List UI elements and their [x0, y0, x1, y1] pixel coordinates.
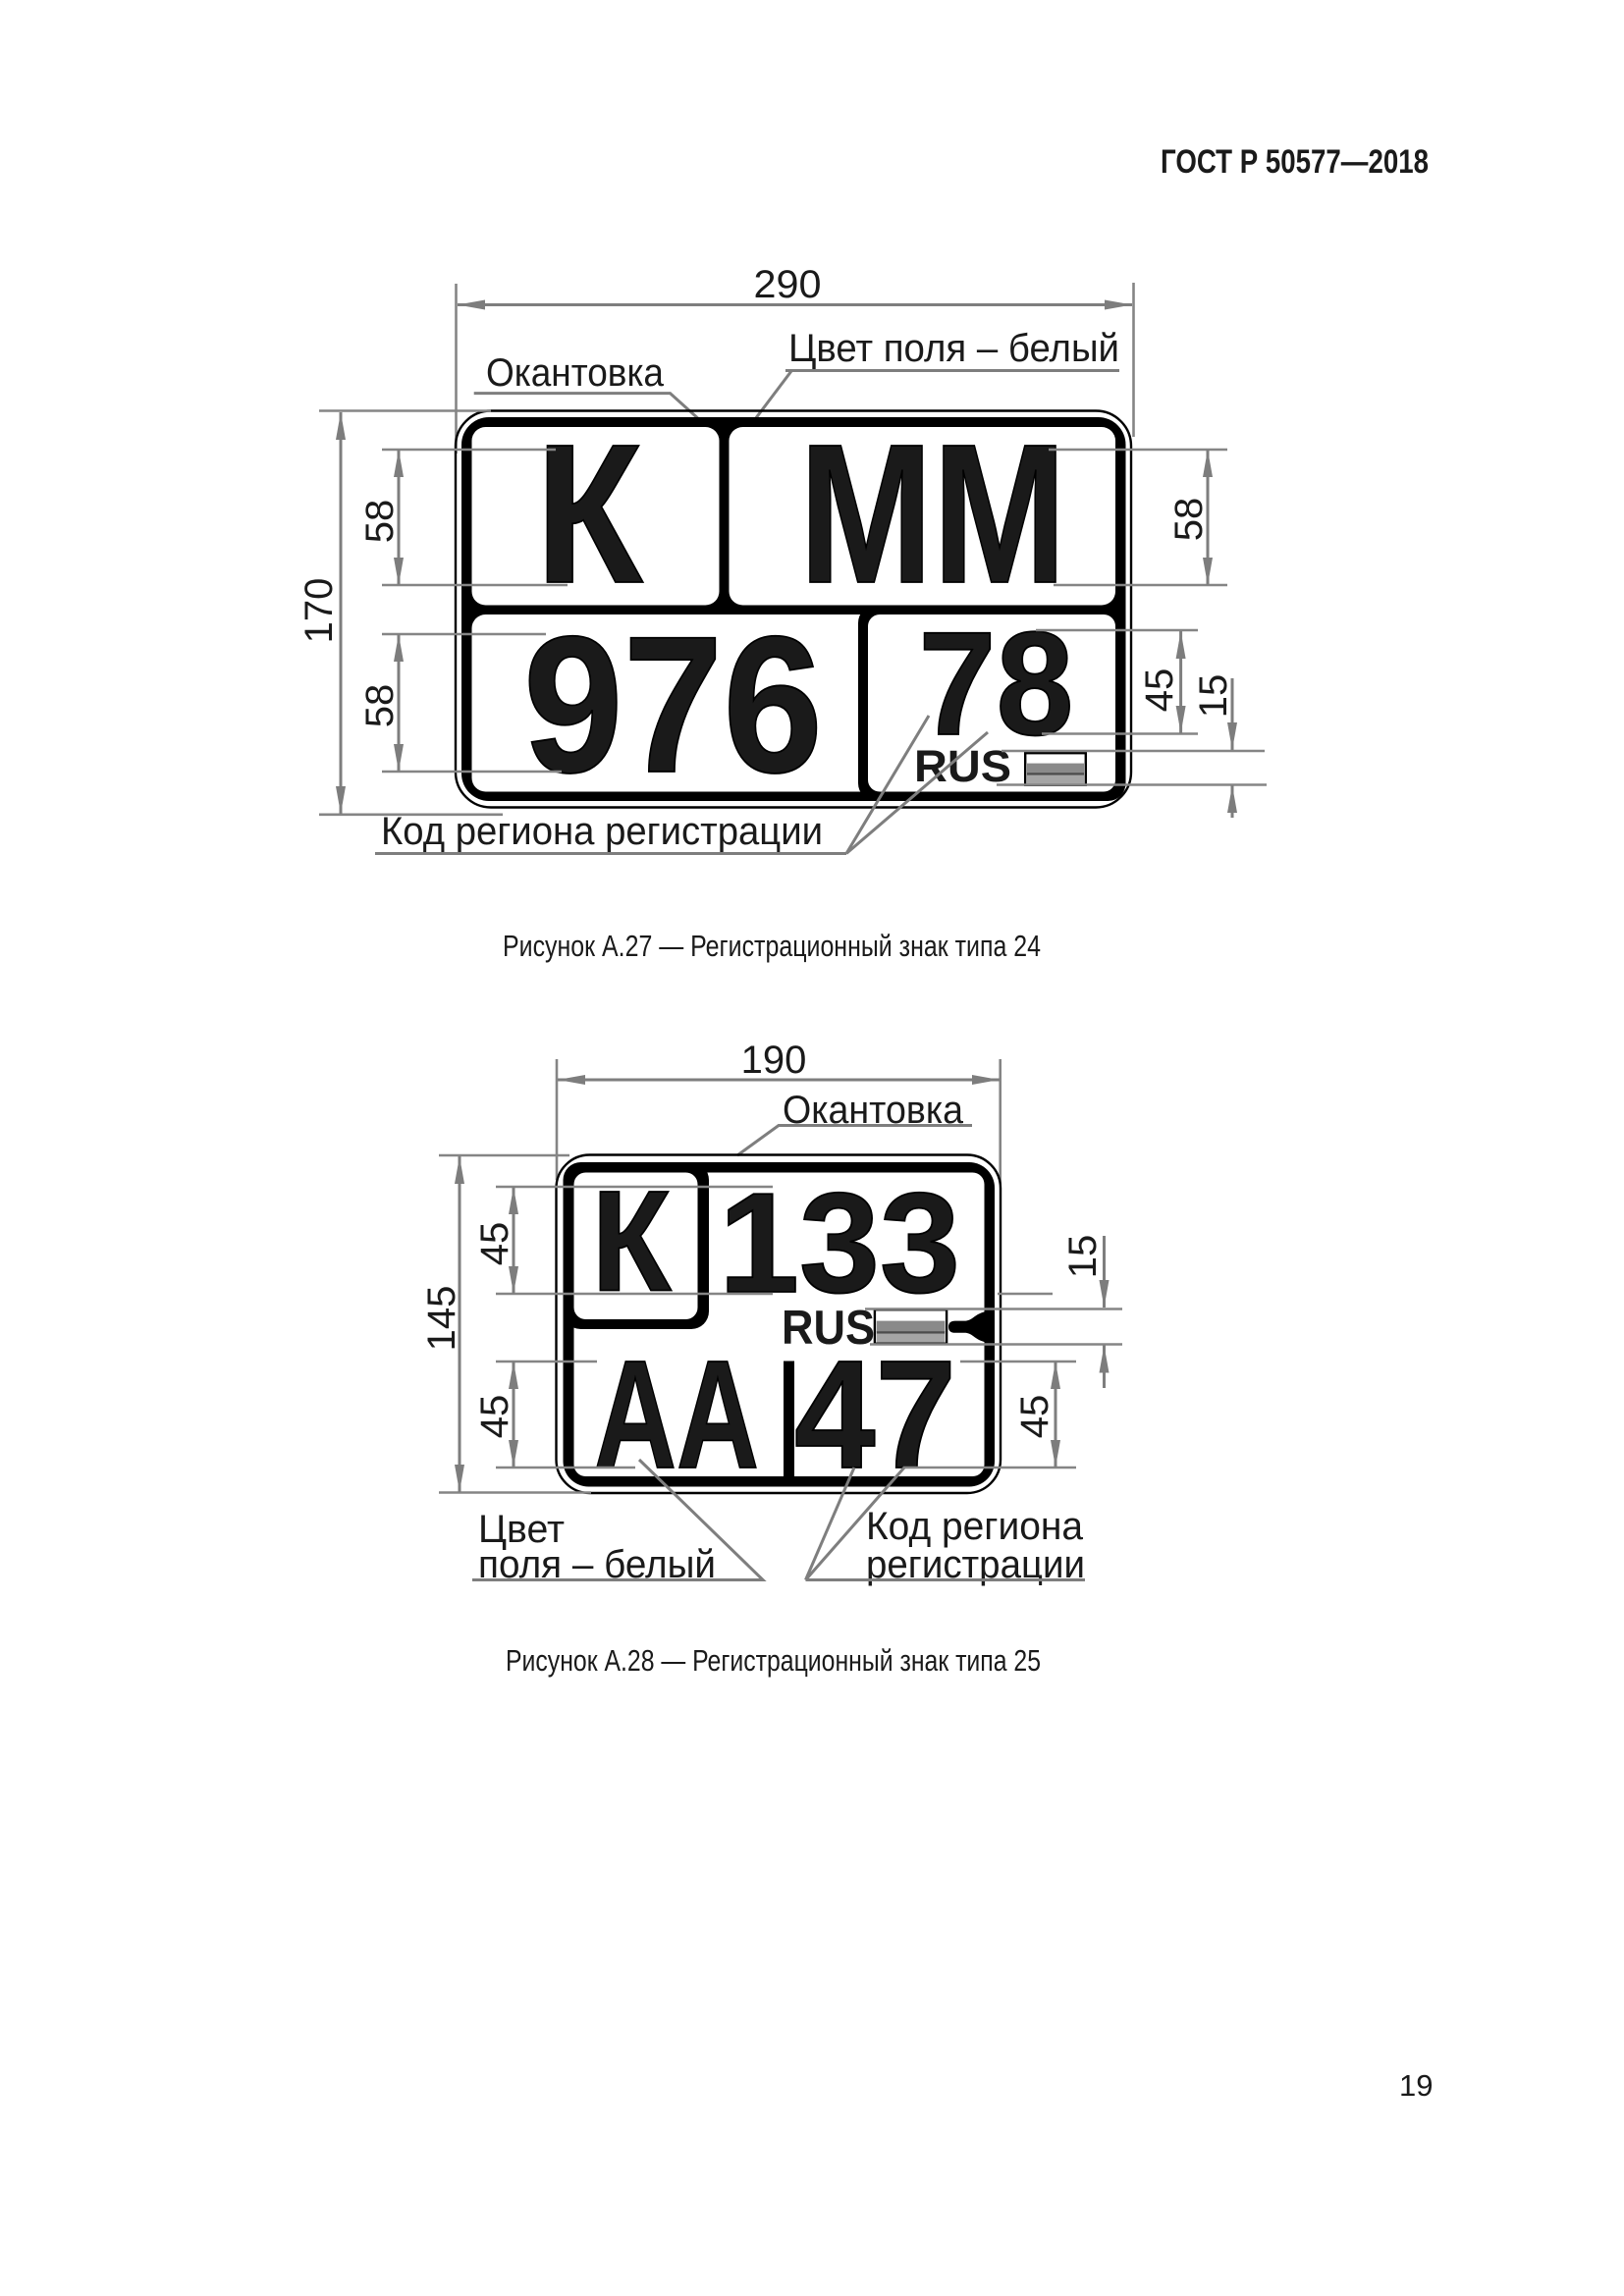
svg-text:АА: АА [594, 1329, 759, 1501]
svg-text:290: 290 [754, 263, 822, 306]
svg-text:ГОСТ Р 50577—2018: ГОСТ Р 50577—2018 [1161, 143, 1429, 181]
svg-text:45: 45 [1138, 668, 1181, 713]
svg-text:15: 15 [1061, 1235, 1105, 1279]
svg-text:58: 58 [358, 500, 402, 544]
svg-text:Код региона регистрации: Код региона регистрации [381, 810, 823, 853]
svg-text:190: 190 [741, 1039, 807, 1082]
svg-text:Окантовка: Окантовка [486, 351, 665, 395]
svg-text:15: 15 [1192, 674, 1235, 719]
svg-text:58: 58 [1167, 498, 1211, 542]
svg-text:145: 145 [420, 1286, 463, 1352]
svg-text:45: 45 [473, 1222, 516, 1266]
svg-text:К: К [536, 402, 644, 624]
svg-text:58: 58 [358, 684, 402, 728]
svg-text:ММ: ММ [799, 402, 1066, 624]
svg-text:47: 47 [794, 1329, 956, 1501]
svg-text:19: 19 [1399, 2068, 1433, 2103]
svg-text:Рисунок А.28 — Регистрационный: Рисунок А.28 — Регистрационный знак типа… [506, 1644, 1041, 1678]
svg-text:Цвет поля – белый: Цвет поля – белый [788, 327, 1119, 370]
svg-text:170: 170 [298, 578, 341, 644]
svg-text:К: К [592, 1161, 673, 1321]
svg-text:Код региона: Код региона [866, 1505, 1084, 1548]
svg-text:45: 45 [473, 1395, 516, 1439]
svg-text:976: 976 [523, 596, 823, 813]
svg-text:Рисунок А.27 — Регистрационный: Рисунок А.27 — Регистрационный знак типа… [503, 930, 1041, 963]
svg-text:45: 45 [1013, 1395, 1056, 1439]
